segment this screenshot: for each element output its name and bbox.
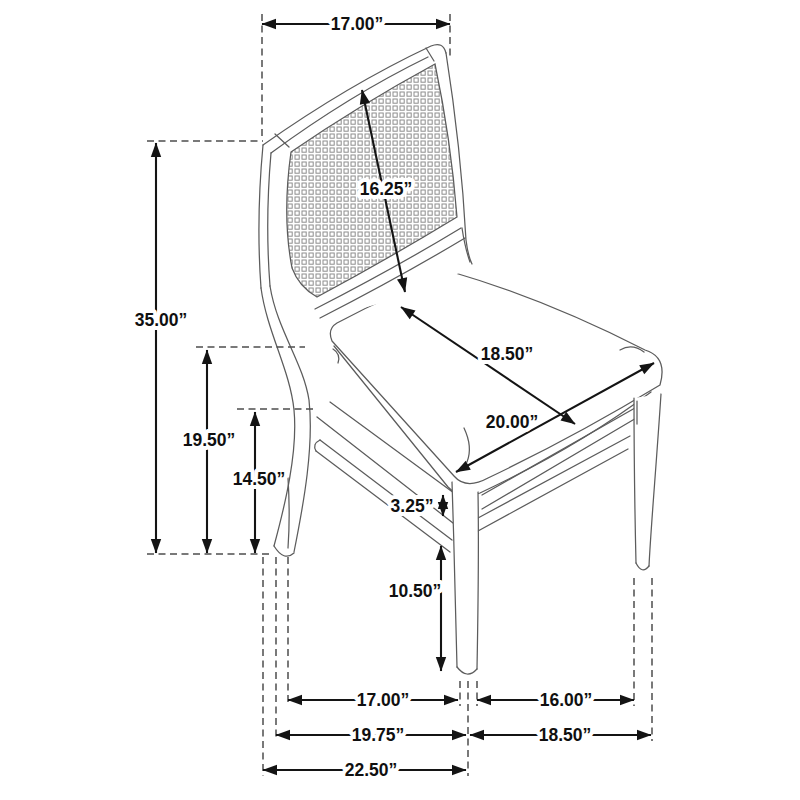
- dim-label-overall-depth: 22.50”: [345, 760, 398, 780]
- front-left-leg: [452, 482, 478, 674]
- floor-reference-dashes-right-leg: [634, 578, 652, 741]
- dim-label-seat-width: 20.00”: [486, 412, 539, 432]
- dim-label-seat-height: 19.50”: [183, 430, 236, 450]
- dim-label-base-span-right: 18.50”: [539, 725, 592, 745]
- chair-dimension-diagram: 17.00” 16.25” 35.00” 19.50” 14.50” 18.50…: [0, 0, 800, 800]
- floor-reference-dashes-rear-leg: [263, 557, 288, 776]
- chair-drawing: [259, 44, 662, 674]
- dim-label-side-leg-span: 16.00”: [540, 690, 593, 710]
- dim-label-overall-height: 35.00”: [135, 310, 188, 330]
- dim-label-side-stretcher-height: 14.50”: [233, 469, 286, 489]
- dim-label-base-depth-rear: 19.75”: [352, 725, 405, 745]
- diagram-canvas: 17.00” 16.25” 35.00” 19.50” 14.50” 18.50…: [0, 0, 800, 800]
- dim-label-seat-depth: 18.50”: [481, 344, 534, 364]
- dim-label-seat-rail-thickness: 3.25”: [391, 496, 434, 516]
- floor-reference-dashes-front-leg: [460, 681, 477, 776]
- seat-cushion: [330, 272, 662, 496]
- dim-label-back-top-width: 17.00”: [331, 14, 384, 34]
- dim-label-back-panel-diagonal: 16.25”: [360, 179, 413, 199]
- front-right-leg: [634, 394, 661, 570]
- dim-label-front-to-back-leg-span: 17.00”: [357, 690, 410, 710]
- dim-label-front-leg-height: 10.50”: [389, 581, 442, 601]
